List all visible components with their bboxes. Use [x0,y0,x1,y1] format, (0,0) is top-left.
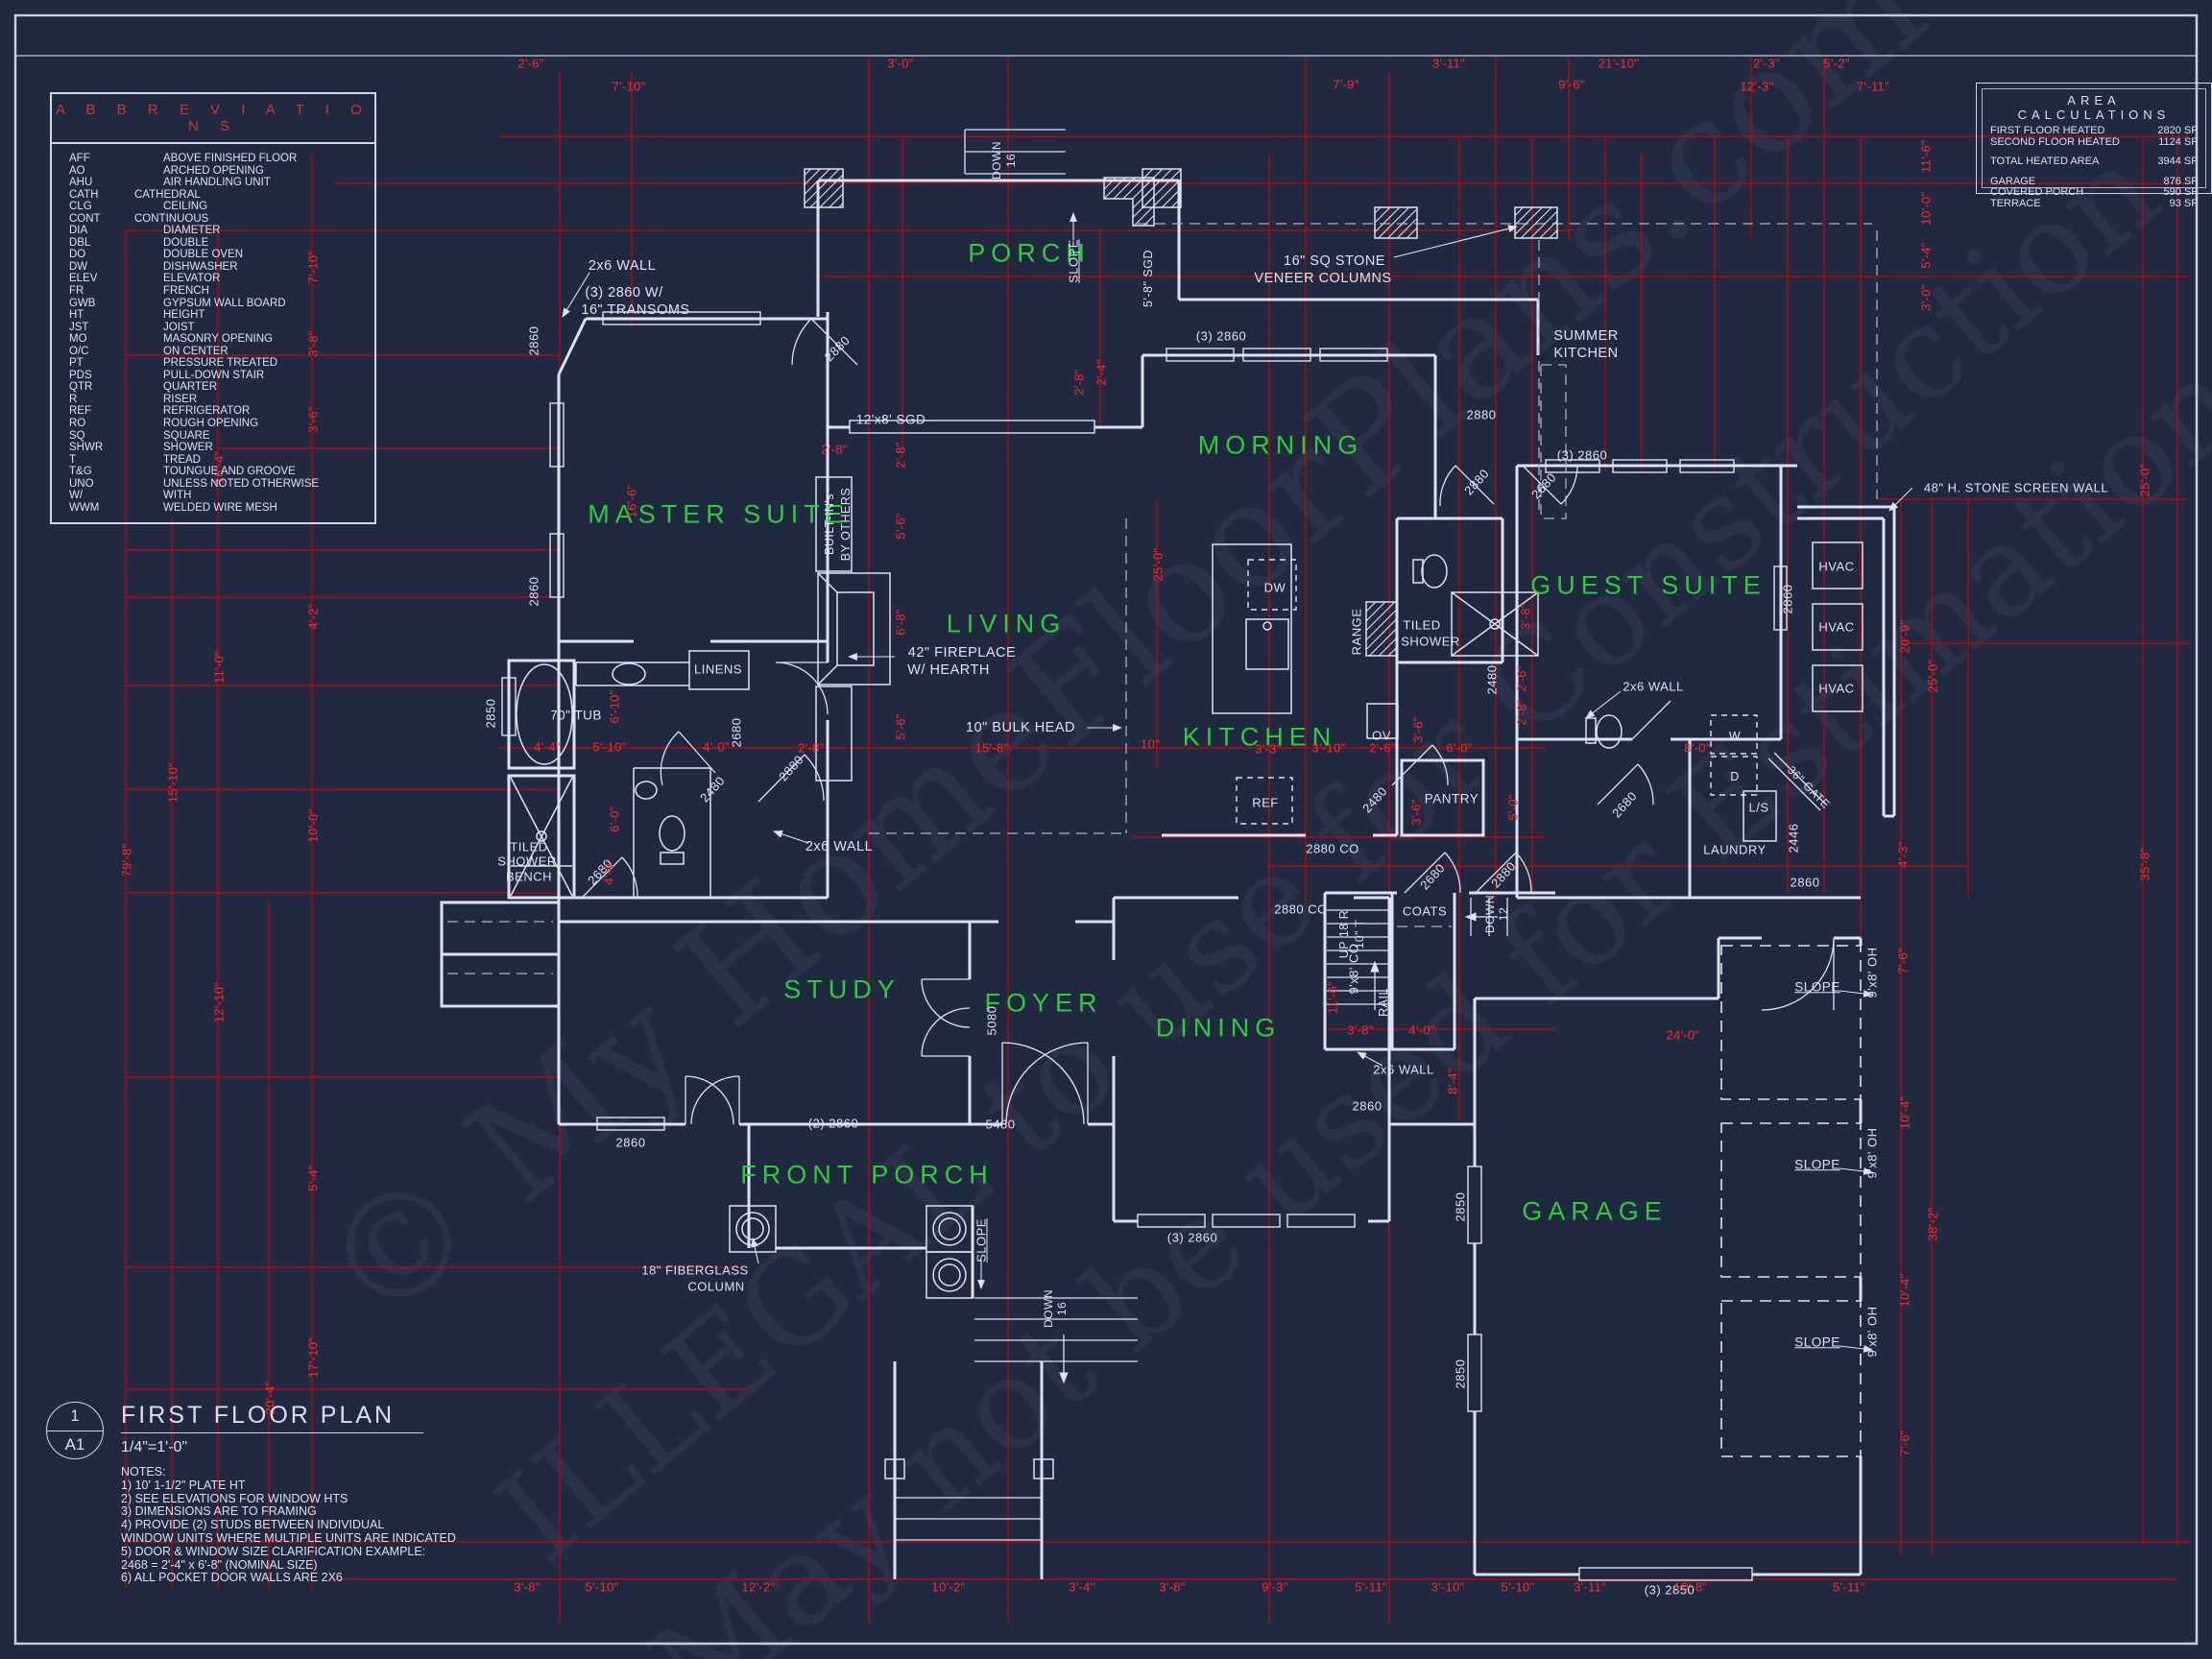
garage-door-size: 9'x8' OH [1866,1306,1879,1357]
dim: 4'-4" [534,741,560,754]
abbreviation-key: CLG [52,201,163,213]
door-size: 2680 [1529,470,1558,501]
detail-bubble: 1 A1 [46,1402,104,1459]
bulkhead-note: 10" BULK HEAD [966,721,1075,735]
dim: 10'-0" [1920,192,1933,226]
abbreviation-value: ELEVATOR [163,273,374,285]
window-size: 2850 [485,699,497,729]
dim: 11'-0" [213,651,226,684]
abbreviation-value: WELDED WIRE MESH [163,502,374,515]
area-calculations-inner: AREA CALCULATIONS FIRST FLOOR HEATED2820… [1982,88,2206,188]
dim: 17'-10" [307,1337,320,1378]
dim: 8'-4" [1447,1068,1459,1094]
abbreviation-row: PDSPULL-DOWN STAIR [52,370,374,382]
dim: 5'-10" [586,1581,619,1594]
slope-note: SLOPE [1794,980,1840,994]
abbreviation-key: JST [52,322,163,334]
dim: 3'-8" [1159,1581,1185,1594]
dim: 25'-0" [1152,548,1165,582]
abbreviation-value: ABOVE FINISHED FLOOR [163,153,374,165]
abbreviation-row: MOMASONRY OPENING [52,333,374,346]
column-note: 18" FIBERGLASS [641,1264,748,1277]
dim: 5'-10" [1502,1581,1535,1594]
dim: 3'-10" [1312,742,1346,755]
garage-door-size: 9'x8' OH [1866,1127,1879,1178]
notes-list: NOTES: 1) 10' 1-1/2" PLATE HT2) SEE ELEV… [121,1466,488,1585]
abbreviation-key: HT [52,309,163,322]
slope-note: SLOPE [1794,1158,1840,1171]
area-row-label: COVERED PORCH [1990,187,2083,199]
blueprint-sheet: © My HomeFloorPlans.com ILLEGAL to use f… [0,0,2212,1659]
area-row-label: SECOND FLOOR HEATED [1990,137,2120,149]
dim: 3'-8" [514,1581,540,1594]
abbreviation-row: PTPRESSURE TREATED [52,357,374,370]
abbreviation-row: DBLDOUBLE [52,237,374,250]
area-row-label: TOTAL HEATED AREA [1990,156,2099,168]
dim: 3'-8" [1347,1024,1373,1037]
abbreviation-key: W/ [52,490,163,502]
window-size: 2860 [1353,1100,1382,1113]
abbreviation-value: CONTINUOUS [134,213,374,226]
abbreviation-key: GWB [52,298,163,310]
window-size: 2860 [616,1137,646,1149]
dim: 10'-4" [1899,1096,1911,1130]
door-size: 2880 [1467,409,1497,421]
dim: 11'-6" [1327,981,1339,1014]
dim: 2'-8" [798,742,824,755]
abbreviation-value: SQUARE [163,430,374,443]
door-size: 2860 [1791,877,1820,889]
area-row-value: 93 SF [2170,199,2198,210]
gate-note: 36" GATE [1786,764,1833,811]
window-note: 16" TRANSOMS [581,303,689,318]
dim: 2'-6" [1369,742,1395,755]
dim: 15'-8" [975,742,1009,755]
dim: 5'-4" [1920,242,1933,268]
area-calculations-title: AREA CALCULATIONS [1990,93,2198,122]
area-row-value: 3944 SF [2157,156,2198,168]
column-note: 16" SQ STONE [1284,254,1385,269]
garage-door-size: 9'x8' OH [1866,947,1879,998]
door-size: 2680 [1610,789,1639,820]
abbreviation-value: RISER [163,394,374,406]
dim: 10" [1141,738,1160,751]
note-line: 4) PROVIDE (2) STUDS BETWEEN INDIVIDUAL [121,1519,488,1532]
abbreviation-value: CEILING [163,201,374,213]
title-block: 1 A1 FIRST FLOOR PLAN 1/4"=1'-0" NOTES: … [46,1402,488,1585]
door-size: 2680 [731,718,743,748]
down-note: DOWN [1043,1289,1054,1328]
fireplace-note: W/ HEARTH [907,663,990,678]
dim: 5'-10" [593,741,627,754]
abbreviation-value: REFRIGERATOR [163,405,374,418]
shower-note: TILED [510,841,547,854]
abbreviation-key: REF [52,405,163,418]
door-size: 2880 [1462,467,1491,497]
coats-label: COATS [1403,905,1447,918]
area-row-value: 2820 SF [2157,126,2198,137]
dim: 7'-9" [1333,79,1358,91]
abbreviation-row: RRISER [52,394,374,406]
window-size: 2860 [1782,585,1794,614]
dim: 2'-8" [1073,369,1086,395]
opening-size: 2880 CO [1306,843,1359,855]
abbreviation-row: SQSQUARE [52,430,374,443]
dim: 25'-0" [2139,464,2152,497]
abbreviation-row: TTREAD [52,454,374,467]
abbreviation-row: CLGCEILING [52,201,374,213]
appliance-dryer: D [1730,771,1740,783]
dim: 5'-11" [1833,1581,1865,1594]
dim: 2'-8" [1516,699,1528,725]
dim: 3'-6" [1410,799,1423,825]
abbreviation-key: SQ [52,430,163,443]
abbreviation-key: RO [52,418,163,430]
dim: 3'-3" [1255,743,1281,756]
door-size: 2680 [1418,861,1447,892]
room-label-foyer: FOYER [984,991,1102,1017]
abbreviation-value: CATHEDRAL [134,189,374,202]
appliance-washer: W [1729,731,1741,743]
dim: 6'-0" [1446,742,1472,755]
dim: 5'-0" [1507,794,1520,820]
abbreviation-key: DO [52,249,163,261]
abbreviation-key: SHWR [52,442,163,454]
door-size: 5'-8" SGD [1142,250,1155,307]
abbreviation-row: DODOUBLE OVEN [52,249,374,261]
dim: 11'-6" [1920,140,1933,173]
dim: 2'-6" [1516,665,1528,691]
abbreviation-key: QTR [52,381,163,394]
window-note: (3) 2860 W/ [585,286,662,301]
appliance-dw: DW [1264,582,1286,594]
abbreviation-key: O/C [52,346,163,358]
window-size: 2860 [528,326,541,356]
dim: 7'-10" [613,81,646,93]
abbreviation-key: PDS [52,370,163,382]
area-calculations-panel: AREA CALCULATIONS FIRST FLOOR HEATED2820… [1976,83,2212,194]
dim: 5'-6" [895,513,907,539]
laundry-sink: L/S [1748,802,1768,814]
abbreviation-key: WWM [52,502,163,515]
dim: 15'-10" [167,762,180,803]
builtins-note: BY OTHERS [840,488,853,562]
dim: 4'-0" [1408,1024,1434,1037]
dim: 3'-11" [1432,58,1465,70]
door-size: 2880 [822,333,852,363]
door-size: 2480 [1486,665,1499,695]
abbreviation-row: ROROUGH OPENING [52,418,374,430]
abbreviation-row: FRFRENCH [52,285,374,298]
abbreviation-key: DBL [52,237,163,250]
abbreviation-key: PT [52,357,163,370]
sheet-number: A1 [47,1431,103,1459]
appliance-range: RANGE [1351,609,1363,656]
room-label-morning: MORNING [1198,433,1364,459]
fireplace-note: 42" FIREPLACE [908,646,1016,661]
column-note: COLUMN [687,1281,744,1293]
abbreviation-value: ROUGH OPENING [163,418,374,430]
note-line: 5) DOOR & WINDOW SIZE CLARIFICATION EXAM… [121,1546,488,1559]
abbreviation-row: GWBGYPSUM WALL BOARD [52,298,374,310]
abbreviation-row: O/CON CENTER [52,346,374,358]
opening-size: 5480 [986,1118,1016,1131]
abbreviation-value: MASONRY OPENING [163,333,374,346]
area-row: TERRACE93 SF [1990,199,2198,210]
area-row: TOTAL HEATED AREA3944 SF [1990,156,2198,168]
abbreviation-key: MO [52,333,163,346]
abbreviation-key: T [52,454,163,467]
dim: 3'-8" [1520,603,1532,629]
dim: 3'-0" [1920,284,1933,310]
note-line: WINDOW UNITS WHERE MULTIPLE UNITS ARE IN… [121,1532,488,1546]
appliance-ref: REF [1252,797,1279,809]
pantry-label: PANTRY [1425,792,1479,805]
opening-size: 5080 [986,1006,998,1036]
room-label-dining: DINING [1156,1016,1282,1042]
dim: 2'-8" [895,442,907,468]
linens-label: LINENS [694,663,742,676]
abbreviation-value: DOUBLE [163,237,374,250]
room-label-study: STUDY [783,977,901,1003]
window-size: (3) 2860 [1196,330,1246,343]
abbreviations-title: A B B R E V I A T I O N S [52,94,374,134]
wall-note: 2x6 WALL [589,259,656,274]
page-title: FIRST FLOOR PLAN [121,1402,423,1433]
door-size: 2880 [777,753,805,783]
dim: 3'-0" [887,58,913,70]
abbreviation-value: ARCHED OPENING [163,165,374,178]
slope-note: SLOPE [1794,1335,1840,1349]
window-size: (3) 2860 [1167,1232,1217,1244]
abbreviation-row: WWMWELDED WIRE MESH [52,502,374,515]
abbreviation-key: UNO [52,478,163,491]
note-line: 3) DIMENSIONS ARE TO FRAMING [121,1505,488,1519]
opening-size: 9'x8' CO [1348,943,1360,994]
abbreviation-row: AOARCHED OPENING [52,165,374,178]
dim: 7'-6" [1897,948,1910,974]
abbreviation-value: UNLESS NOTED OTHERWISE [163,478,374,491]
room-label-guest-suite: GUEST SUITE [1530,573,1767,599]
note-line: 2) SEE ELEVATIONS FOR WINDOW HTS [121,1493,488,1506]
window-size: 2860 [528,577,541,607]
door-size: 2446 [1788,824,1800,854]
dim: 5'-11" [1355,1581,1387,1594]
window-size: (2) 2860 [808,1118,858,1130]
dim: 3'-4" [1069,1581,1094,1594]
opening-size: 2880 CO [1274,903,1328,916]
dim: 35'-8" [2139,848,2152,881]
abbreviation-row: DIADIAMETER [52,225,374,237]
abbreviation-key: FR [52,285,163,298]
abbreviation-value: JOIST [163,322,374,334]
abbreviation-value: ON CENTER [163,346,374,358]
abbreviation-key: R [52,394,163,406]
area-row: COVERED PORCH590 SF [1990,187,2198,199]
dim: 4'-3" [1897,841,1910,867]
wall-note: 2x6 WALL [1623,681,1684,693]
abbreviations-rows: AFFABOVE FINISHED FLOORAOARCHED OPENINGA… [52,144,374,514]
door-size: 2480 [698,774,727,805]
down-note: DOWN [1484,895,1496,933]
dim: 2'-3" [1753,58,1779,70]
summer-kitchen-label: KITCHEN [1553,347,1618,361]
dim: 9'-3" [1262,1581,1287,1594]
abbreviation-value: DOUBLE OVEN [163,249,374,261]
room-label-garage: GARAGE [1522,1199,1668,1225]
dim: 25'-0" [1927,660,1939,693]
abbreviation-value: FRENCH [163,285,374,298]
dim: 20'-9" [1899,620,1911,654]
down-note: 16 [1056,1302,1068,1315]
area-row-value: 1124 SF [2158,137,2198,149]
abbreviation-value: PRESSURE TREATED [163,357,374,370]
abbreviation-row: HTHEIGHT [52,309,374,322]
dim: 7'-6" [1899,1430,1911,1455]
abbreviation-row: CONTCONTINUOUS [52,213,374,226]
abbreviation-row: T&GTOUNGUE AND GROOVE [52,466,374,478]
hvac-label: HVAC [1818,561,1854,573]
window-size: (3) 2860 [1557,449,1607,462]
abbreviation-row: W/WITH [52,490,374,502]
dim: 10'-0" [307,809,320,843]
dim: 6'-10" [609,690,621,724]
dim: 2'-6" [517,58,543,70]
window-size: 2850 [1455,1192,1467,1222]
abbreviation-row: AFFABOVE FINISHED FLOOR [52,153,374,165]
dim: 5'-2" [1823,58,1849,70]
abbreviation-value: GYPSUM WALL BOARD [163,298,374,310]
abbreviation-key: AFF [52,153,163,165]
door-size: 12'x8' SGD [856,413,926,426]
down-note: 12 [1498,907,1509,921]
door-size: 2880 [1489,859,1518,890]
dim: 5'-4" [307,1165,320,1190]
notes-title: NOTES: [121,1466,488,1479]
abbreviation-key: DW [52,261,163,274]
abbreviation-value: PULL-DOWN STAIR [163,370,374,382]
hvac-label: HVAC [1818,683,1854,695]
slope-note: SLOPE [1068,239,1080,283]
dim: 9'-6" [1558,79,1584,91]
dim: 24'-0" [1667,1029,1700,1042]
dim: 10'-2" [932,1581,966,1594]
laundry-label: LAUNDRY [1703,844,1766,856]
down-note: 16 [1005,154,1017,167]
note-line: 6) ALL POCKET DOOR WALLS ARE 2X6 [121,1572,488,1585]
room-label-front-porch: FRONT PORCH [740,1163,994,1189]
dim: 6'-0" [609,805,621,831]
summer-kitchen-label: SUMMER [1553,329,1618,344]
drawing-scale: 1/4"=1'-0" [121,1439,488,1456]
abbreviation-value: SHOWER [163,442,374,454]
dim: 3'-6" [1412,716,1425,742]
abbreviation-key: T&G [52,466,163,478]
abbreviation-value: DISHWASHER [163,261,374,274]
dim: 12'-3" [1741,81,1774,93]
tub-note: 70" TUB [550,709,602,722]
note-line: 1) 10' 1-1/2" PLATE HT [121,1479,488,1493]
dim: 4'-2" [307,603,320,629]
area-row-value: 590 SF [2164,187,2198,199]
dim: 2'-8" [821,444,847,456]
shower-note: TILED [1403,619,1440,632]
area-row: SECOND FLOOR HEATED1124 SF [1990,137,2198,149]
slope-note: SLOPE [975,1218,988,1262]
abbreviation-row: AHUAIR HANDLING UNIT [52,177,374,189]
dim: 5'-6" [895,713,907,739]
screen-wall-note: 48" H. STONE SCREEN WALL [1924,482,2108,494]
shower-note: SHOWER [1401,636,1460,648]
wall-note: 2x6 WALL [1373,1064,1434,1076]
shower-note: SHOWER [497,855,557,868]
area-row-label: TERRACE [1990,199,2041,210]
area-calc-rows: FIRST FLOOR HEATED2820 SFSECOND FLOOR HE… [1990,126,2198,209]
dim: 16'-6" [626,485,638,518]
abbreviation-row: CATHCATHEDRAL [52,189,374,202]
abbreviation-value: QUARTER [163,381,374,394]
abbreviation-value: WITH [163,490,374,502]
dim: 12'-10" [213,982,226,1022]
dim: 38'-2" [1927,1208,1939,1241]
window-size: 2850 [1455,1359,1467,1389]
down-note: DOWN [991,141,1002,180]
door-size: 2480 [1360,784,1389,815]
abbreviation-row: DWDISHWASHER [52,261,374,274]
abbreviation-key: ELEV [52,273,163,285]
abbreviation-row: JSTJOIST [52,322,374,334]
dim: 21'-10" [1599,58,1639,70]
wall-note: 2x6 WALL [805,840,873,854]
abbreviation-row: ELEVELEVATOR [52,273,374,285]
abbreviation-key: AO [52,165,163,178]
dim: 2'-4" [1095,359,1108,385]
abbreviation-key: AHU [52,177,163,189]
abbreviation-row: QTRQUARTER [52,381,374,394]
dim: 6'-8" [895,609,907,635]
dim: 79'-8" [121,844,133,878]
dim: 4'-0" [603,858,615,884]
dim: 8'-0" [1684,742,1710,755]
builtins-note: BUILT-IN's [824,493,836,555]
dim: 12'-2" [742,1581,776,1594]
note-line: 2468 = 2'-4" x 6'-8" (NOMINAL SIZE) [121,1559,488,1573]
column-note: VENEER COLUMNS [1254,272,1391,286]
abbreviation-row: UNOUNLESS NOTED OTHERWISE [52,478,374,491]
hvac-label: HVAC [1818,621,1854,634]
shower-note: BENCH [506,871,552,883]
dim: 3'-10" [1431,1581,1465,1594]
dim: 10'-8" [1674,1581,1708,1594]
abbreviations-panel: A B B R E V I A T I O N S AFFABOVE FINIS… [50,92,376,524]
room-label-living: LIVING [947,612,1067,637]
detail-number: 1 [47,1403,103,1431]
abbreviation-value: DIAMETER [163,225,374,237]
dim: 10'-4" [1899,1274,1911,1308]
dim: 3'-11" [1574,1581,1606,1594]
abbreviation-key: DIA [52,225,163,237]
area-row-label: FIRST FLOOR HEATED [1990,126,2104,137]
abbreviation-row: SHWRSHOWER [52,442,374,454]
dim: 4'-0" [703,741,729,754]
rail-note: RAIL [1378,988,1390,1017]
abbreviation-value: TREAD [163,454,374,467]
abbreviation-row: REFREFRIGERATOR [52,405,374,418]
abbreviation-value: AIR HANDLING UNIT [163,177,374,189]
abbreviation-value: HEIGHT [163,309,374,322]
area-row: FIRST FLOOR HEATED2820 SF [1990,126,2198,137]
dim: 7'-11" [1857,81,1889,93]
